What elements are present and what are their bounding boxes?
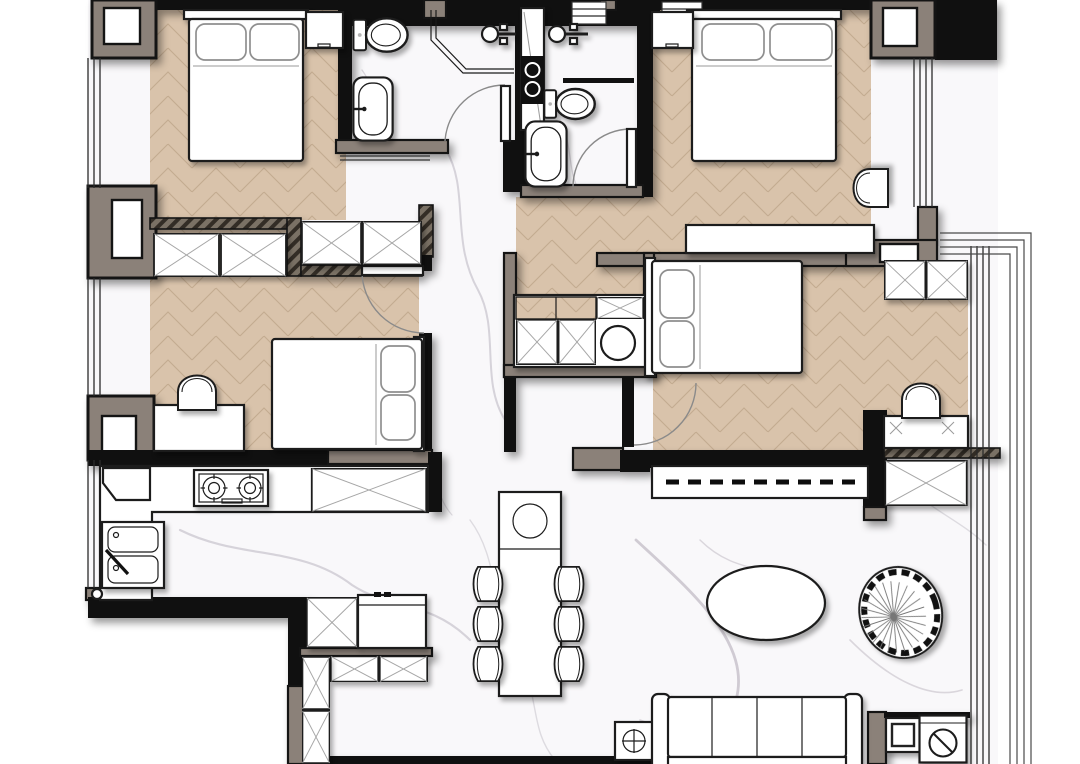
glass-screen [563,78,634,83]
desk-chair [178,376,216,411]
pillow [770,24,832,60]
wall-top-left [150,0,346,10]
pillow [660,321,694,367]
dining-chair [555,607,584,641]
pillar-living-cap [864,507,886,520]
bay-wardrobe [885,261,968,300]
closet [514,295,646,367]
pillar-top-right-corner [871,0,935,58]
nightstand [306,12,343,48]
coffee-table [707,566,825,640]
pillar-left-middle [88,186,156,278]
pillow [196,24,246,60]
desk-chair [902,384,940,419]
nightstand [652,12,693,48]
double-sink [102,522,164,588]
hatch-wall-b [287,218,301,276]
single-bed [272,337,424,451]
hall-closet [302,222,421,265]
wall-bath1-bottom [336,140,448,153]
wall-top-right-corner [935,0,997,60]
floor-plan-svg [0,0,1080,764]
dining-chair [555,647,584,681]
dining-chair [474,607,503,641]
pillow [381,395,415,440]
toilet [353,18,407,51]
wall-bath2-right [637,0,653,197]
bathtub [353,77,392,140]
sofa [652,694,862,764]
pillow [702,24,764,60]
wall-tv-stub [620,450,650,472]
desk [154,405,244,451]
tv-console [652,466,868,498]
desk [686,225,874,253]
wall-kitchen-top [88,450,328,466]
pillow [381,346,415,392]
double-bed [687,10,841,161]
shoe-cabinet [307,598,357,647]
pillar-tv-left [573,448,623,470]
side-table [615,722,653,760]
vanity-column [521,8,544,130]
floor-plan-page [0,0,1080,764]
double-bed [184,10,308,161]
tall-cabinet [312,469,426,512]
washing-machine [920,716,967,763]
wall-kitchen-right [428,452,442,512]
wall-entry-thin [300,648,432,656]
laundry-cabinet [886,718,920,752]
toilet [544,89,594,119]
gas-hob [194,470,268,506]
hatch-wall-a [150,218,290,229]
dining-table [499,492,561,696]
dining-chair [555,567,584,601]
pillow [250,24,299,60]
wall-corridor-right [504,375,516,452]
bench-cabinet [331,656,428,681]
pillar-top-a [424,0,446,18]
window-bathroom-1 [572,2,606,24]
pillar-top-left-corner [92,0,156,58]
dining-chair [474,567,503,601]
wall-kitchen-top-gray [328,450,432,464]
tall-cabinet [302,657,329,763]
armchair [854,169,889,207]
desk [884,416,968,448]
storage-cabinet [885,461,966,506]
dining-chair [474,647,503,681]
refrigerator [358,592,426,648]
single-bed [645,258,802,376]
door-stop [92,589,102,599]
bathtub [525,121,566,186]
pillar-sofa-right [868,712,886,764]
pillow [660,270,694,318]
laundry-basket [601,326,635,360]
